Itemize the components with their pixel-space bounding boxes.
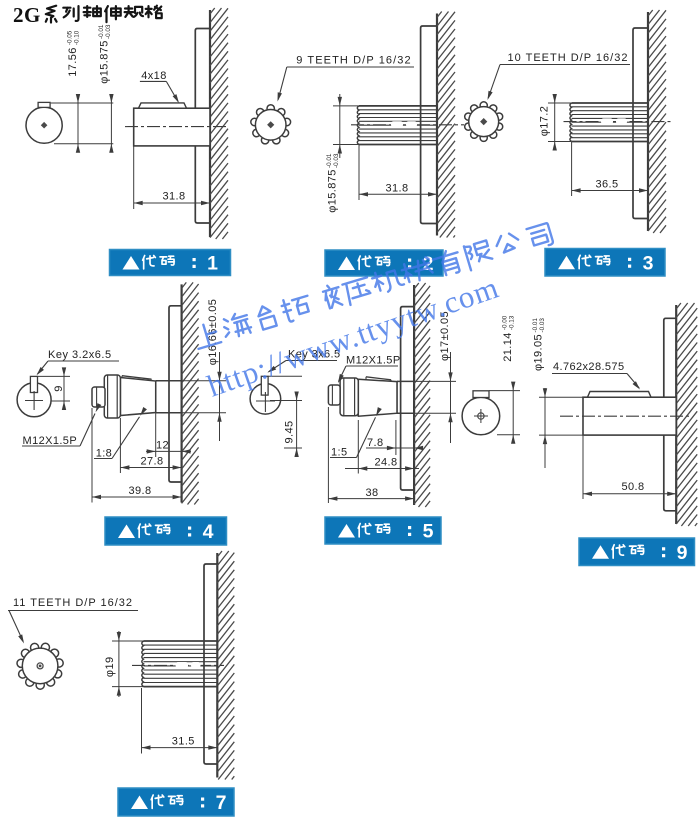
svg-text:11 TEETH D/P 16/32: 11 TEETH D/P 16/32 xyxy=(13,597,133,609)
svg-text:9: 9 xyxy=(677,542,688,564)
svg-text:21.14: 21.14 xyxy=(502,332,514,362)
svg-text:M12X1.5P: M12X1.5P xyxy=(346,355,401,367)
svg-text:-0.10: -0.10 xyxy=(73,30,80,45)
svg-text:1:8: 1:8 xyxy=(96,448,113,460)
svg-text:-0.03: -0.03 xyxy=(539,318,546,333)
svg-text:4x18: 4x18 xyxy=(141,70,166,82)
svg-text:10 TEETH D/P 16/32: 10 TEETH D/P 16/32 xyxy=(508,52,629,64)
svg-text:31.8: 31.8 xyxy=(385,183,408,195)
svg-text:7.8: 7.8 xyxy=(367,437,384,449)
svg-text:31.8: 31.8 xyxy=(162,191,185,203)
svg-text:φ19: φ19 xyxy=(104,657,116,678)
svg-text:9.45: 9.45 xyxy=(283,420,295,443)
svg-text:50.8: 50.8 xyxy=(621,481,644,493)
svg-text:φ15.875: φ15.875 xyxy=(326,169,338,213)
svg-text:M12X1.5P: M12X1.5P xyxy=(23,435,78,447)
svg-text:31.5: 31.5 xyxy=(172,736,195,748)
svg-text:4: 4 xyxy=(203,521,214,543)
svg-text:φ19.05: φ19.05 xyxy=(533,334,545,371)
svg-text:9: 9 xyxy=(53,385,65,392)
svg-text:1:5: 1:5 xyxy=(331,447,348,459)
svg-text:17.56: 17.56 xyxy=(67,47,79,77)
svg-text:φ17.2: φ17.2 xyxy=(539,106,551,137)
svg-text:2G: 2G xyxy=(13,3,41,27)
svg-text:27.8: 27.8 xyxy=(140,456,163,468)
svg-text:7: 7 xyxy=(216,792,227,814)
svg-text:9 TEETH D/P 16/32: 9 TEETH D/P 16/32 xyxy=(296,55,412,67)
svg-text:3: 3 xyxy=(643,252,654,274)
svg-text:38: 38 xyxy=(365,487,378,499)
svg-text:39.8: 39.8 xyxy=(128,485,151,497)
svg-text:4.762x28.575: 4.762x28.575 xyxy=(553,361,624,373)
svg-text:-0.03: -0.03 xyxy=(333,153,340,168)
svg-text:24.8: 24.8 xyxy=(374,457,397,469)
svg-text:-0.03: -0.03 xyxy=(105,24,112,39)
svg-text:36.5: 36.5 xyxy=(595,179,618,191)
svg-text:Key 3.2x6.5: Key 3.2x6.5 xyxy=(48,349,112,361)
svg-text:1: 1 xyxy=(207,253,218,275)
svg-text:φ15.875: φ15.875 xyxy=(99,40,111,84)
svg-text:5: 5 xyxy=(423,521,434,543)
svg-text:-0.13: -0.13 xyxy=(509,315,516,330)
svg-text:12: 12 xyxy=(156,440,169,452)
